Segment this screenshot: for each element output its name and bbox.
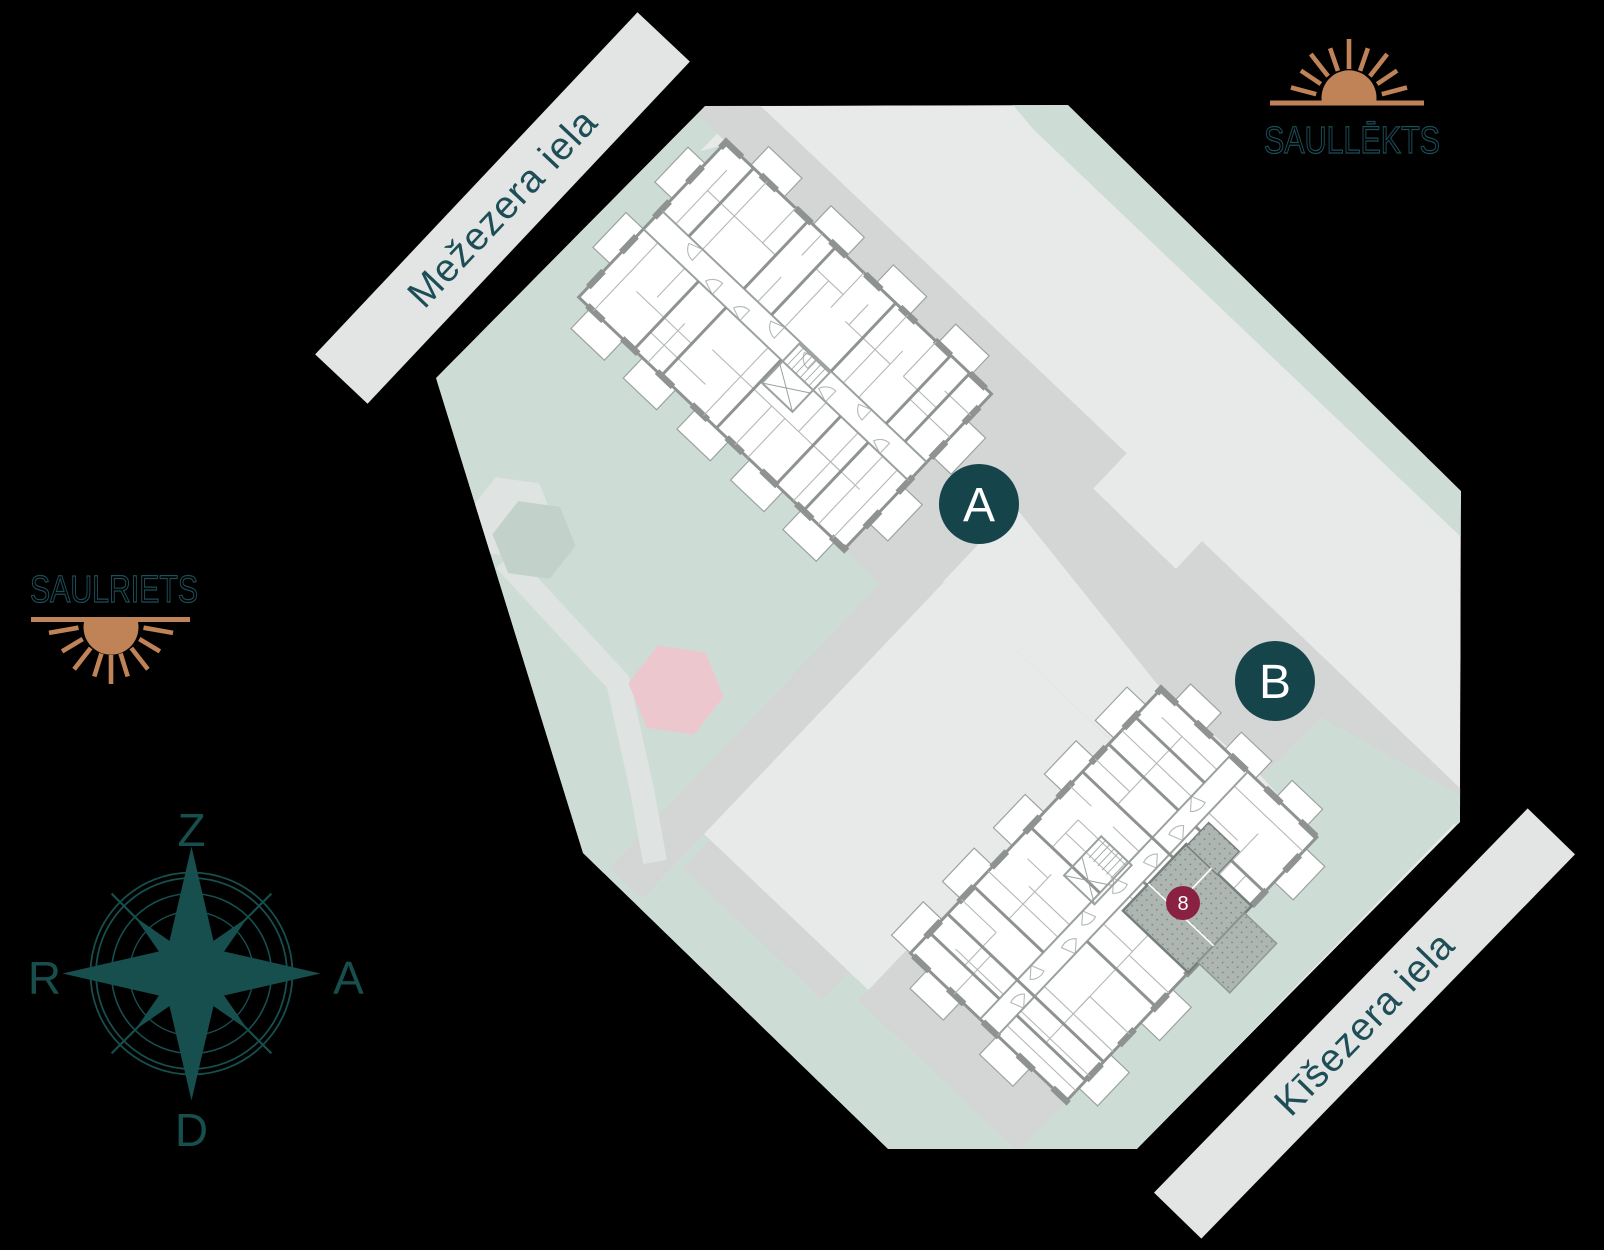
svg-text:B: B bbox=[1259, 656, 1291, 709]
svg-text:D: D bbox=[175, 1104, 208, 1156]
svg-text:SAULLĒKTS: SAULLĒKTS bbox=[1264, 120, 1440, 162]
svg-text:SAULRIETS: SAULRIETS bbox=[30, 569, 198, 611]
svg-text:8: 8 bbox=[1177, 893, 1188, 915]
svg-text:A: A bbox=[333, 952, 364, 1004]
svg-text:A: A bbox=[963, 479, 995, 532]
svg-text:Z: Z bbox=[177, 804, 205, 856]
svg-text:R: R bbox=[28, 952, 61, 1004]
